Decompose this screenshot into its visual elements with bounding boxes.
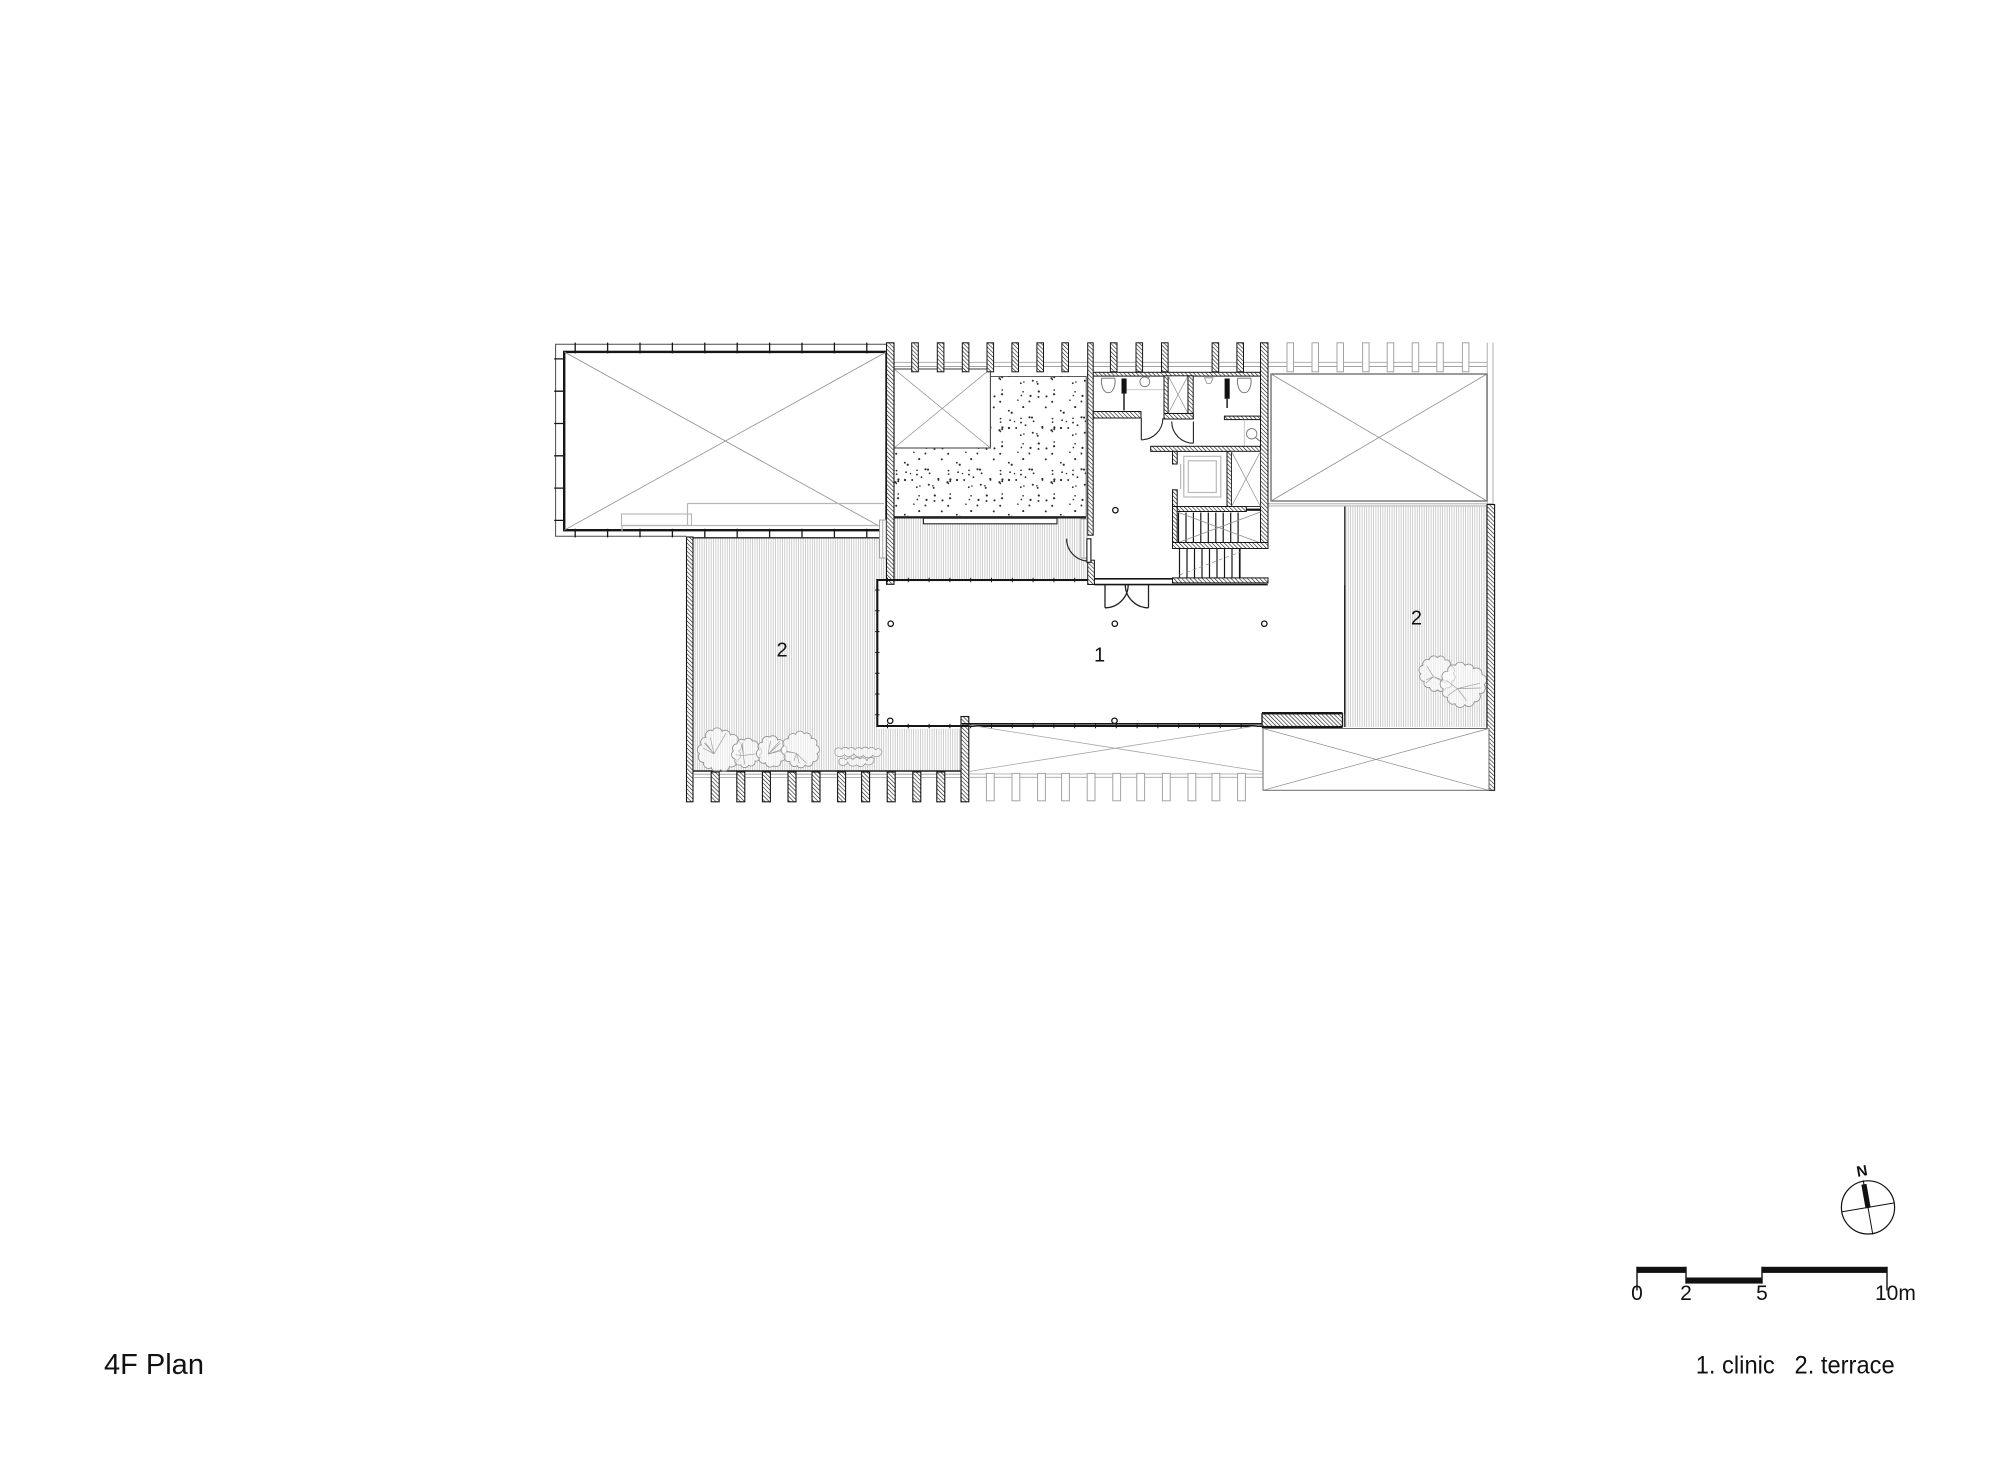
svg-text:5: 5 [1756, 1282, 1768, 1305]
svg-text:1. clinic 2. terrace: 1. clinic 2. terrace [1696, 1352, 1895, 1380]
svg-text:2: 2 [1680, 1282, 1692, 1305]
svg-text:2: 2 [776, 640, 787, 662]
svg-text:1: 1 [1094, 645, 1105, 667]
svg-text:0: 0 [1631, 1282, 1643, 1305]
svg-text:10m: 10m [1875, 1282, 1916, 1305]
svg-text:4F Plan: 4F Plan [104, 1349, 204, 1381]
svg-text:2: 2 [1411, 608, 1422, 630]
